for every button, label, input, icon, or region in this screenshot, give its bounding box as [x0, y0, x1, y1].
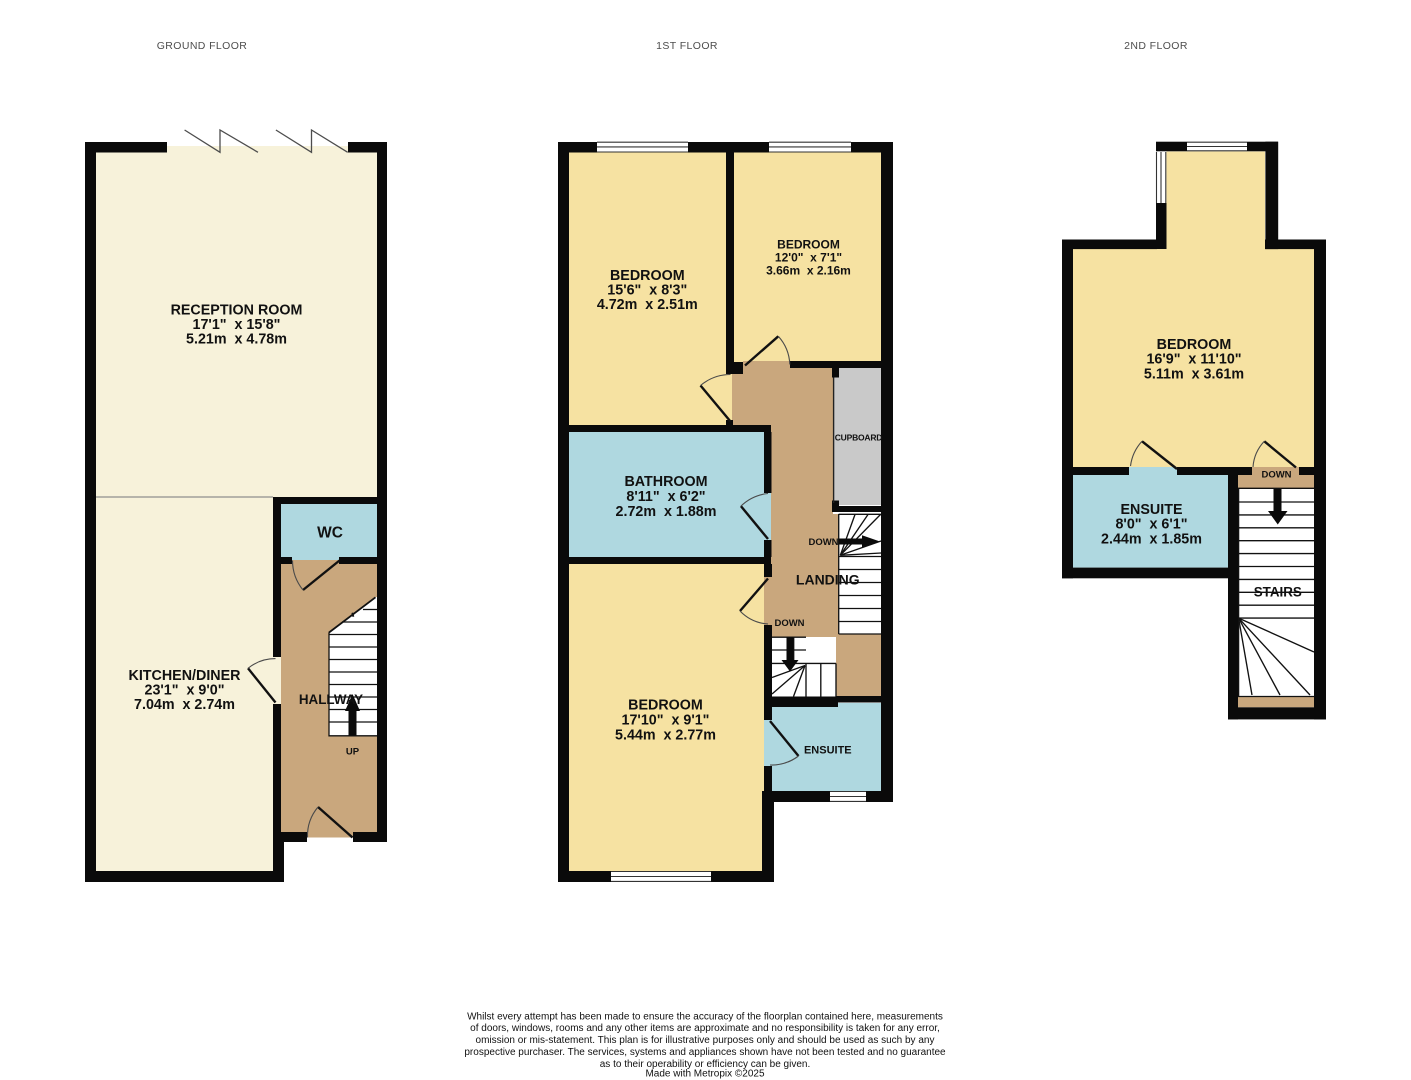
svg-text:ENSUITE: ENSUITE: [804, 745, 852, 757]
svg-text:5.21m x 4.78m: 5.21m x 4.78m: [186, 332, 287, 348]
svg-text:8'0" x 6'1": 8'0" x 6'1": [1115, 517, 1187, 533]
svg-text:23'1" x 9'0": 23'1" x 9'0": [145, 683, 225, 699]
svg-text:DOWN: DOWN: [808, 537, 838, 548]
svg-text:16'9" x 11'10": 16'9" x 11'10": [1146, 352, 1241, 368]
svg-text:BEDROOM: BEDROOM: [628, 698, 703, 714]
svg-text:DOWN: DOWN: [774, 618, 804, 629]
svg-text:DOWN: DOWN: [1261, 470, 1291, 481]
svg-text:BEDROOM: BEDROOM: [1157, 337, 1232, 353]
svg-text:prospective purchaser. The ser: prospective purchaser. The services, sys…: [464, 1047, 946, 1058]
svg-text:2ND FLOOR: 2ND FLOOR: [1124, 40, 1188, 52]
svg-text:15'6" x 8'3": 15'6" x 8'3": [607, 283, 687, 299]
svg-text:17'10" x 9'1": 17'10" x 9'1": [622, 713, 710, 729]
svg-text:omission or mis-statement. Thi: omission or mis-statement. This plan is …: [476, 1035, 935, 1046]
svg-text:of doors, windows, rooms and a: of doors, windows, rooms and any other i…: [470, 1023, 940, 1034]
svg-text:BATHROOM: BATHROOM: [624, 474, 707, 490]
svg-text:12'0" x 7'1": 12'0" x 7'1": [775, 250, 842, 264]
svg-text:Made with Metropix ©2025: Made with Metropix ©2025: [645, 1069, 765, 1080]
svg-text:GROUND FLOOR: GROUND FLOOR: [157, 40, 248, 52]
svg-text:7.04m x 2.74m: 7.04m x 2.74m: [134, 697, 235, 713]
svg-text:KITCHEN/DINER: KITCHEN/DINER: [129, 668, 242, 684]
svg-text:8'11" x 6'2": 8'11" x 6'2": [626, 489, 705, 505]
svg-text:BEDROOM: BEDROOM: [777, 238, 840, 252]
svg-text:5.44m x 2.77m: 5.44m x 2.77m: [615, 728, 716, 744]
svg-text:BEDROOM: BEDROOM: [610, 268, 685, 284]
svg-text:ENSUITE: ENSUITE: [1121, 502, 1183, 518]
svg-text:1ST FLOOR: 1ST FLOOR: [656, 40, 718, 52]
svg-text:17'1" x 15'8": 17'1" x 15'8": [193, 317, 281, 333]
svg-text:UP: UP: [346, 747, 360, 758]
svg-text:CUPBOARD: CUPBOARD: [835, 433, 883, 443]
svg-text:LANDING: LANDING: [796, 571, 860, 587]
svg-text:RECEPTION ROOM: RECEPTION ROOM: [171, 303, 303, 319]
svg-text:WC: WC: [317, 525, 343, 542]
svg-text:4.72m x 2.51m: 4.72m x 2.51m: [597, 297, 698, 313]
svg-text:2.72m x 1.88m: 2.72m x 1.88m: [616, 504, 717, 520]
svg-text:Whilst every attempt has been: Whilst every attempt has been made to en…: [467, 1011, 943, 1022]
svg-text:5.11m x 3.61m: 5.11m x 3.61m: [1144, 366, 1244, 382]
svg-text:2.44m x 1.85m: 2.44m x 1.85m: [1101, 531, 1202, 547]
svg-text:STAIRS: STAIRS: [1254, 585, 1302, 600]
svg-text:HALLWAY: HALLWAY: [299, 692, 363, 707]
svg-text:3.66m x 2.16m: 3.66m x 2.16m: [766, 263, 851, 277]
